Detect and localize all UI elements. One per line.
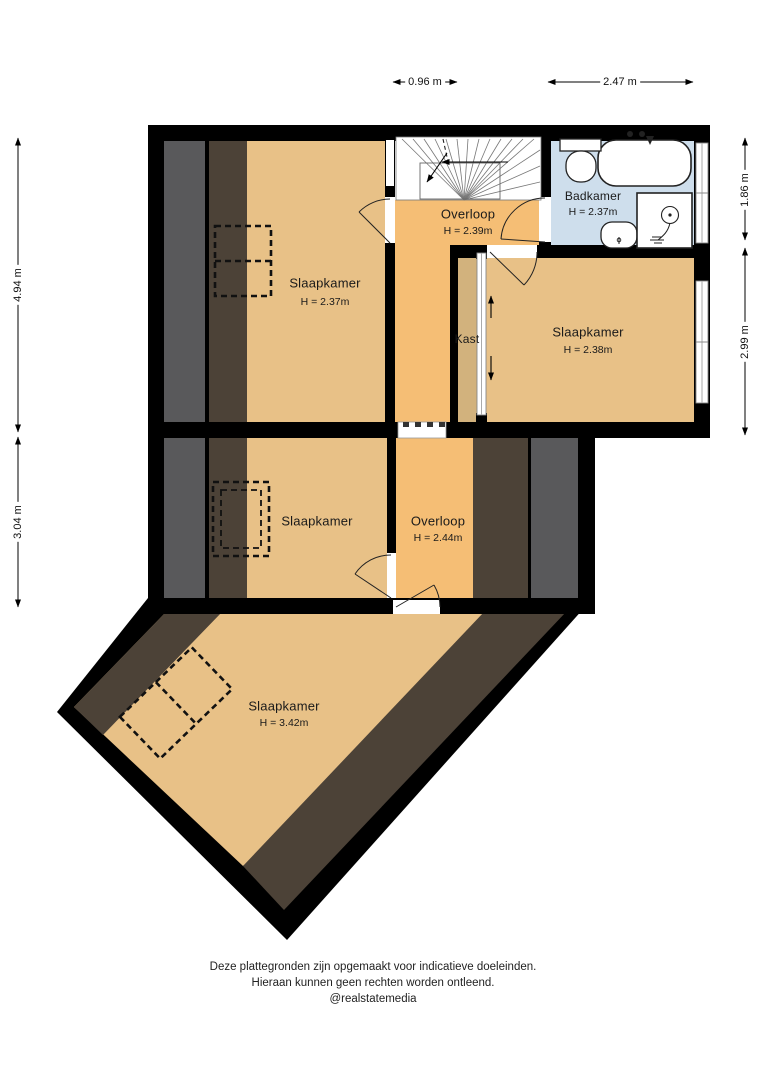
shower-icon — [637, 193, 692, 248]
dimension-right-upper: 1.86 m — [739, 170, 751, 210]
room-height-landing-top: H = 2.39m — [444, 225, 493, 237]
dimension-top-left: 0.96 m — [405, 76, 445, 88]
room-height-bathroom: H = 2.37m — [569, 206, 618, 218]
dimension-left-lower: 3.04 m — [12, 502, 24, 542]
diagonal-bedroom-shell — [57, 598, 593, 940]
room-label-bedroom-right: Slaapkamer — [552, 325, 623, 340]
dimension-left-upper: 4.94 m — [12, 265, 24, 305]
floorplan-drawing — [0, 0, 763, 1080]
room-height-bedroom-topleft: H = 2.37m — [301, 296, 350, 308]
room-label-closet: Kast — [455, 332, 480, 346]
room-label-bedroom-middle: Slaapkamer — [281, 514, 352, 529]
floorplan-page: Slaapkamer H = 2.37m Overloop H = 2.39m … — [0, 0, 763, 1080]
window-bathroom-right — [696, 143, 708, 243]
footer-disclaimer-line1: Deze plattegronden zijn opgemaakt voor i… — [0, 961, 746, 973]
room-height-bedroom-bottom: H = 3.42m — [260, 717, 309, 729]
footer-credit: @realstatemedia — [0, 993, 746, 1005]
room-label-bedroom-bottom: Slaapkamer — [248, 699, 319, 714]
room-label-bathroom: Badkamer — [565, 189, 621, 203]
room-height-bedroom-right: H = 2.38m — [564, 344, 613, 356]
footer-disclaimer-line2: Hieraan kunnen geen rechten worden ontle… — [0, 977, 746, 989]
dimension-right-lower: 2.99 m — [739, 322, 751, 362]
room-height-landing-middle: H = 2.44m — [414, 532, 463, 544]
dimension-top-right: 2.47 m — [600, 76, 640, 88]
sink-icon — [601, 222, 637, 248]
room-label-bedroom-topleft: Slaapkamer — [289, 276, 360, 291]
stairs — [396, 137, 541, 200]
room-label-landing-top: Overloop — [441, 207, 495, 222]
window-bedroom-right — [696, 281, 708, 403]
room-label-landing-middle: Overloop — [411, 514, 465, 529]
